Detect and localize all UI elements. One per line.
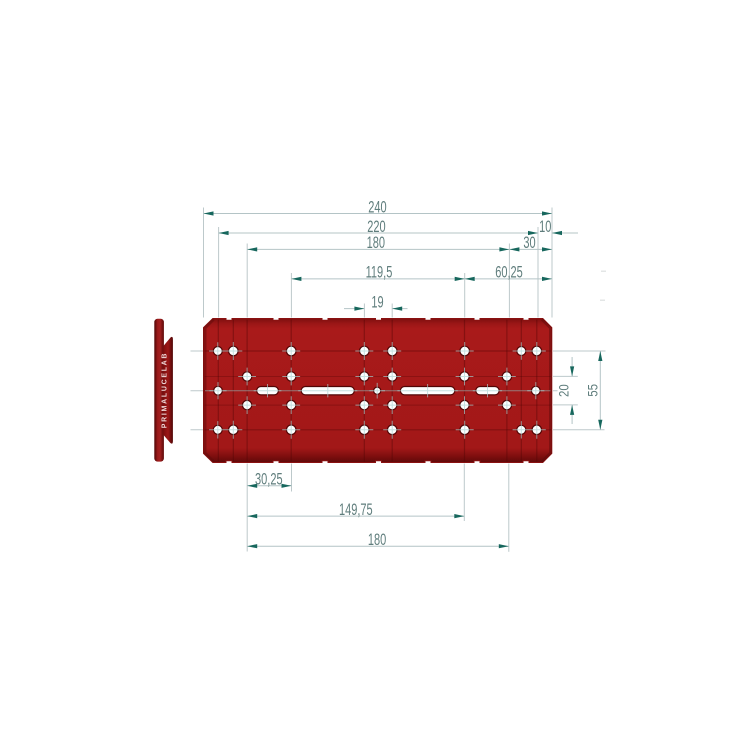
svg-text:19: 19 [371,292,383,311]
svg-text:20: 20 [557,384,572,397]
svg-text:180: 180 [367,233,386,252]
svg-text:149,75: 149,75 [339,500,373,519]
svg-text:10: 10 [539,217,551,236]
svg-text:60,25: 60,25 [495,262,523,281]
svg-text:30: 30 [523,233,535,252]
svg-text:PRIMALUCELAB: PRIMALUCELAB [162,352,169,428]
svg-text:180: 180 [368,530,387,549]
svg-text:55: 55 [585,384,600,397]
svg-text:240: 240 [368,197,387,216]
svg-text:119,5: 119,5 [366,262,393,281]
svg-text:30,25: 30,25 [255,469,283,488]
